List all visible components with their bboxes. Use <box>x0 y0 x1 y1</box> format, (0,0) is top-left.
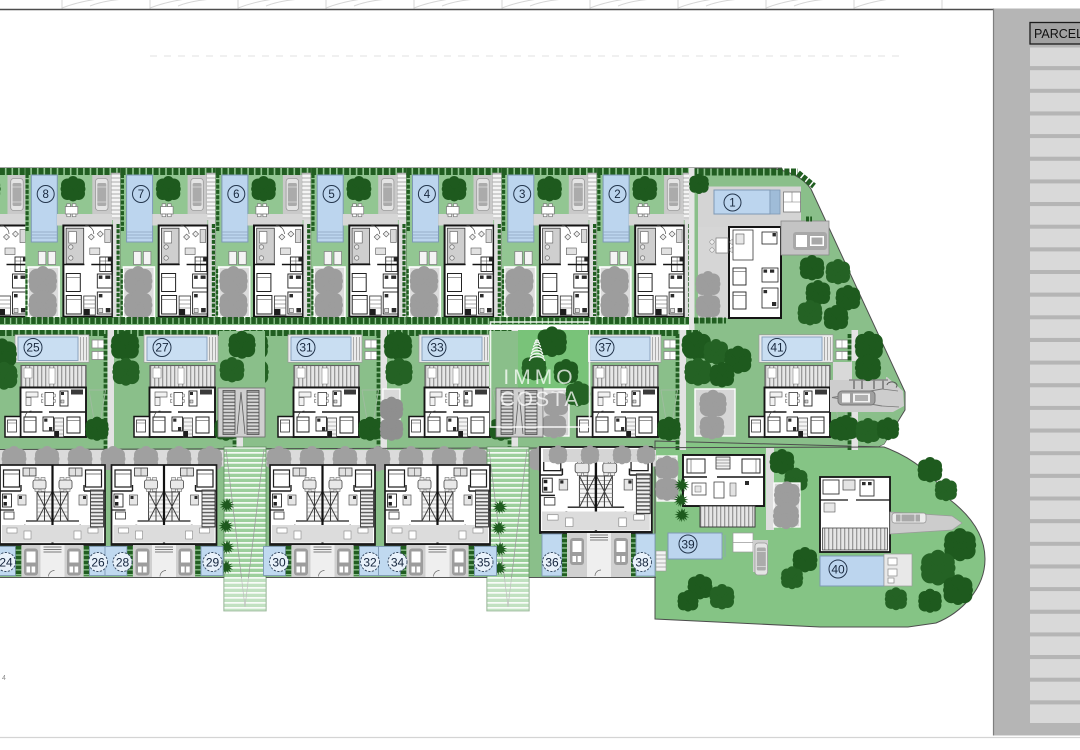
svg-text:35: 35 <box>477 556 491 570</box>
svg-text:25: 25 <box>26 341 40 355</box>
svg-text:34: 34 <box>391 556 405 570</box>
svg-text:4: 4 <box>2 675 6 682</box>
svg-text:40: 40 <box>831 563 845 577</box>
svg-text:IMMO: IMMO <box>503 366 576 389</box>
svg-text:41: 41 <box>770 341 784 355</box>
svg-text:27: 27 <box>155 341 169 355</box>
svg-text:38: 38 <box>635 556 649 570</box>
svg-text:33: 33 <box>430 341 444 355</box>
svg-text:32: 32 <box>363 556 377 570</box>
svg-text:26: 26 <box>91 556 105 570</box>
svg-text:36: 36 <box>545 556 559 570</box>
svg-text:31: 31 <box>299 341 313 355</box>
svg-text:30: 30 <box>272 556 286 570</box>
svg-text:29: 29 <box>206 556 220 570</box>
svg-text:4: 4 <box>424 189 431 201</box>
svg-text:PARCELA: PARCELA <box>1034 27 1080 41</box>
svg-text:5: 5 <box>328 189 334 201</box>
svg-text:3: 3 <box>519 189 525 201</box>
svg-text:2: 2 <box>614 189 620 201</box>
svg-text:7: 7 <box>138 189 144 201</box>
svg-text:28: 28 <box>116 556 130 570</box>
svg-text:37: 37 <box>598 341 612 355</box>
svg-text:24: 24 <box>0 556 13 570</box>
svg-text:6: 6 <box>233 189 239 201</box>
svg-text:1: 1 <box>729 198 735 210</box>
svg-text:COSTA: COSTA <box>500 388 581 411</box>
svg-text:8: 8 <box>42 189 48 201</box>
svg-text:39: 39 <box>681 538 695 552</box>
